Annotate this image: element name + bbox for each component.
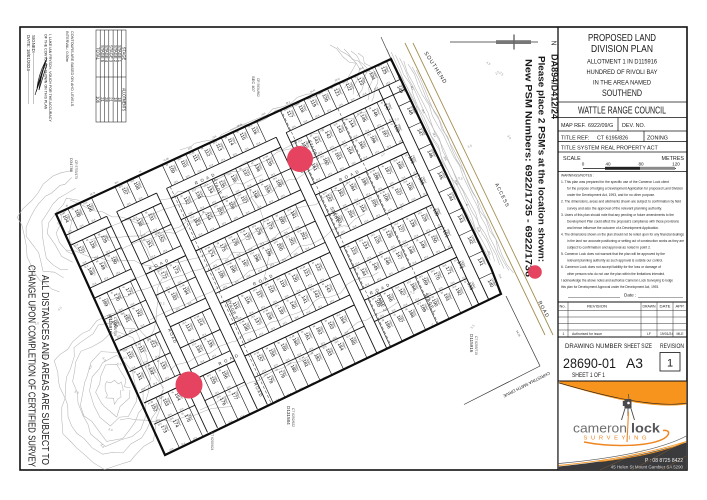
- svg-text:REAL PROPERTY ACT: REAL PROPERTY ACT: [601, 146, 659, 152]
- svg-text:LF: LF: [647, 332, 651, 336]
- svg-text:other persons who do not use t: other persons who do not use the plan wi…: [567, 272, 665, 276]
- svg-text:ALL DISTANCES AND AREAS ARE SU: ALL DISTANCES AND AREAS ARE SUBJECT TO: [39, 275, 50, 465]
- svg-text:No.: No.: [560, 304, 566, 309]
- svg-text:SHEET 1 OF 1: SHEET 1 OF 1: [572, 373, 606, 379]
- svg-text:SHEET SIZE: SHEET SIZE: [624, 343, 652, 350]
- svg-text:OF THE CONTOURS SHOWN ON THIS: OF THE CONTOURS SHOWN ON THIS PLAN: [44, 34, 48, 110]
- svg-text:DA894/D412/24: DA894/D412/24: [550, 54, 561, 120]
- svg-text:survey and also the approval o: survey and also the approval of the rele…: [567, 206, 662, 210]
- svg-text:CHANGE UPON COMPLETION OF CERT: CHANGE UPON COMPLETION OF CERTIFIED SURV…: [26, 265, 37, 467]
- svg-text:CT 6295/719: CT 6295/719: [474, 336, 478, 355]
- svg-text:1. This plan was prepared fo: 1. This plan was prepared for the specif…: [561, 180, 669, 184]
- svg-text:6922/09/G: 6922/09/G: [588, 123, 613, 129]
- svg-text:for the purpose of lodging a D: for the purpose of lodging a Development…: [567, 187, 683, 191]
- svg-text:REVISION: REVISION: [587, 304, 607, 309]
- svg-text:WARNINGS/NOTES :: WARNINGS/NOTES :: [561, 174, 594, 178]
- svg-text:MAP REF.: MAP REF.: [561, 123, 586, 129]
- svg-text:Date :: Date :: [624, 293, 636, 298]
- svg-text:DATE: 18/01/2024: DATE: 18/01/2024: [26, 35, 31, 71]
- svg-text:I acknowledge the above notes: I acknowledge the above notes and author…: [561, 278, 673, 282]
- svg-text:MLE: MLE: [677, 332, 685, 336]
- svg-text:DRAWING NUMBER: DRAWING NUMBER: [565, 343, 623, 350]
- svg-text:Authorised for issue: Authorised for issue: [572, 332, 602, 336]
- svg-text:N: N: [550, 41, 557, 46]
- svg-text:5.5: 5.5: [117, 362, 122, 366]
- svg-text:SCALE: SCALE: [563, 156, 581, 162]
- svg-text:ZONING: ZONING: [647, 136, 668, 142]
- svg-text:106: 106: [96, 96, 101, 104]
- svg-text:SEC 407: SEC 407: [251, 76, 256, 93]
- svg-text:SOUTHEND: SOUTHEND: [602, 88, 642, 99]
- svg-text:19/01/24: 19/01/24: [660, 332, 673, 336]
- svg-text:3. Users of this plan should: 3. Users of this plan should note that a…: [561, 213, 674, 217]
- svg-text:S U R V E Y I N G: S U R V E Y I N G: [584, 436, 647, 442]
- svg-text:DATE: DATE: [660, 304, 671, 309]
- svg-text:45 Helen St Mount Gambier SA 5: 45 Helen St Mount Gambier SA 5290: [611, 465, 684, 470]
- svg-text:APP.: APP.: [676, 304, 685, 309]
- svg-text:A3: A3: [626, 355, 643, 371]
- svg-text:this plan for Development Appr: this plan for Development Approval under…: [561, 285, 659, 289]
- svg-text:ALLOTMENT 1 IN D115916: ALLOTMENT 1 IN D115916: [587, 59, 657, 66]
- svg-text:CR 5834/862: CR 5834/862: [256, 78, 260, 97]
- svg-text:relevant planning authority as: relevant planning authority as such appr…: [567, 259, 663, 263]
- svg-text:DEV. NO.: DEV. NO.: [622, 123, 645, 129]
- svg-text:I, LUKE IAN FRYSCH, VOUCH FOR: I, LUKE IAN FRYSCH, VOUCH FOR THE ACCURA…: [48, 34, 52, 122]
- svg-text:TITLE REF:: TITLE REF:: [561, 136, 589, 142]
- svg-text:CT 6295/719: CT 6295/719: [113, 317, 117, 336]
- svg-text:HUNDRED OF RIVOLI BAY: HUNDRED OF RIVOLI BAY: [587, 69, 658, 76]
- svg-text:1: 1: [563, 332, 565, 336]
- svg-text:TITLE SYSTEM: TITLE SYSTEM: [561, 146, 600, 152]
- svg-text:40: 40: [605, 162, 611, 167]
- svg-text:4. The dimensions shown on t: 4. The dimensions shown on the plan shou…: [561, 233, 684, 237]
- svg-text:80: 80: [638, 162, 644, 167]
- svg-text:1: 1: [667, 358, 673, 370]
- svg-text:5. Cameron Lock does not war: 5. Cameron Lock does not warrant that th…: [561, 252, 665, 256]
- svg-text:Please place 2 PSM's at the lo: Please place 2 PSM's at the location sho…: [537, 56, 548, 262]
- svg-text:CT 6292/622: CT 6292/622: [291, 408, 295, 427]
- svg-text:IN THE AREA NAMED: IN THE AREA NAMED: [593, 80, 651, 87]
- svg-text:6. Cameron Lock does not acc: 6. Cameron Lock does not accept liabilit…: [561, 265, 661, 269]
- svg-text:D34788: D34788: [69, 158, 74, 173]
- svg-text:DRAWN: DRAWN: [643, 304, 656, 309]
- svg-text:cameron: cameron: [573, 421, 627, 436]
- svg-text:REVISION: REVISION: [660, 343, 684, 350]
- svg-text:subject to confirmation and ap: subject to confirmation and approval as …: [567, 246, 651, 250]
- svg-text:WATTLE RANGE COUNCIL: WATTLE RANGE COUNCIL: [578, 106, 666, 117]
- svg-text:lock: lock: [631, 421, 661, 436]
- svg-text:D115916: D115916: [469, 334, 474, 353]
- svg-text:28690-01: 28690-01: [563, 355, 616, 371]
- svg-text:INTERVAL: 0.50m: INTERVAL: 0.50m: [65, 31, 69, 62]
- svg-text:120: 120: [672, 162, 680, 167]
- svg-text:under the Development Act, 199: under the Development Act, 1993, and for…: [567, 193, 655, 197]
- svg-text:D131584: D131584: [286, 406, 291, 425]
- svg-text:D115916: D115916: [108, 315, 113, 334]
- svg-text:2. The dimensions, areas and: 2. The dimensions, areas and allotments …: [561, 200, 681, 204]
- svg-text:TOTAL: TOTAL: [96, 47, 101, 61]
- svg-text:in the land nor accurate posit: in the land nor accurate positioning or …: [567, 239, 684, 243]
- svg-text:0: 0: [582, 162, 585, 167]
- svg-text:P : 08 8725 8422: P : 08 8725 8422: [645, 458, 683, 464]
- svg-text:CT 6195/826: CT 6195/826: [597, 136, 628, 142]
- svg-text:New PSM Numbers: 6922/1735 - 6: New PSM Numbers: 6922/1735 - 6922/1736: [524, 59, 535, 277]
- svg-text:DIVISION PLAN: DIVISION PLAN: [591, 43, 653, 55]
- svg-text:Development Plan could affect: Development Plan could affect the propos…: [567, 219, 679, 223]
- svg-text:and hence influence the outcom: and hence influence the outcome of a Dev…: [567, 226, 659, 230]
- svg-text:CONTOURS ARE BASED ON AHD LEVE: CONTOURS ARE BASED ON AHD LEVELS: [70, 31, 74, 107]
- svg-text:CT 6292/624: CT 6292/624: [210, 432, 214, 451]
- svg-text:CR 5753/173: CR 5753/173: [74, 160, 78, 179]
